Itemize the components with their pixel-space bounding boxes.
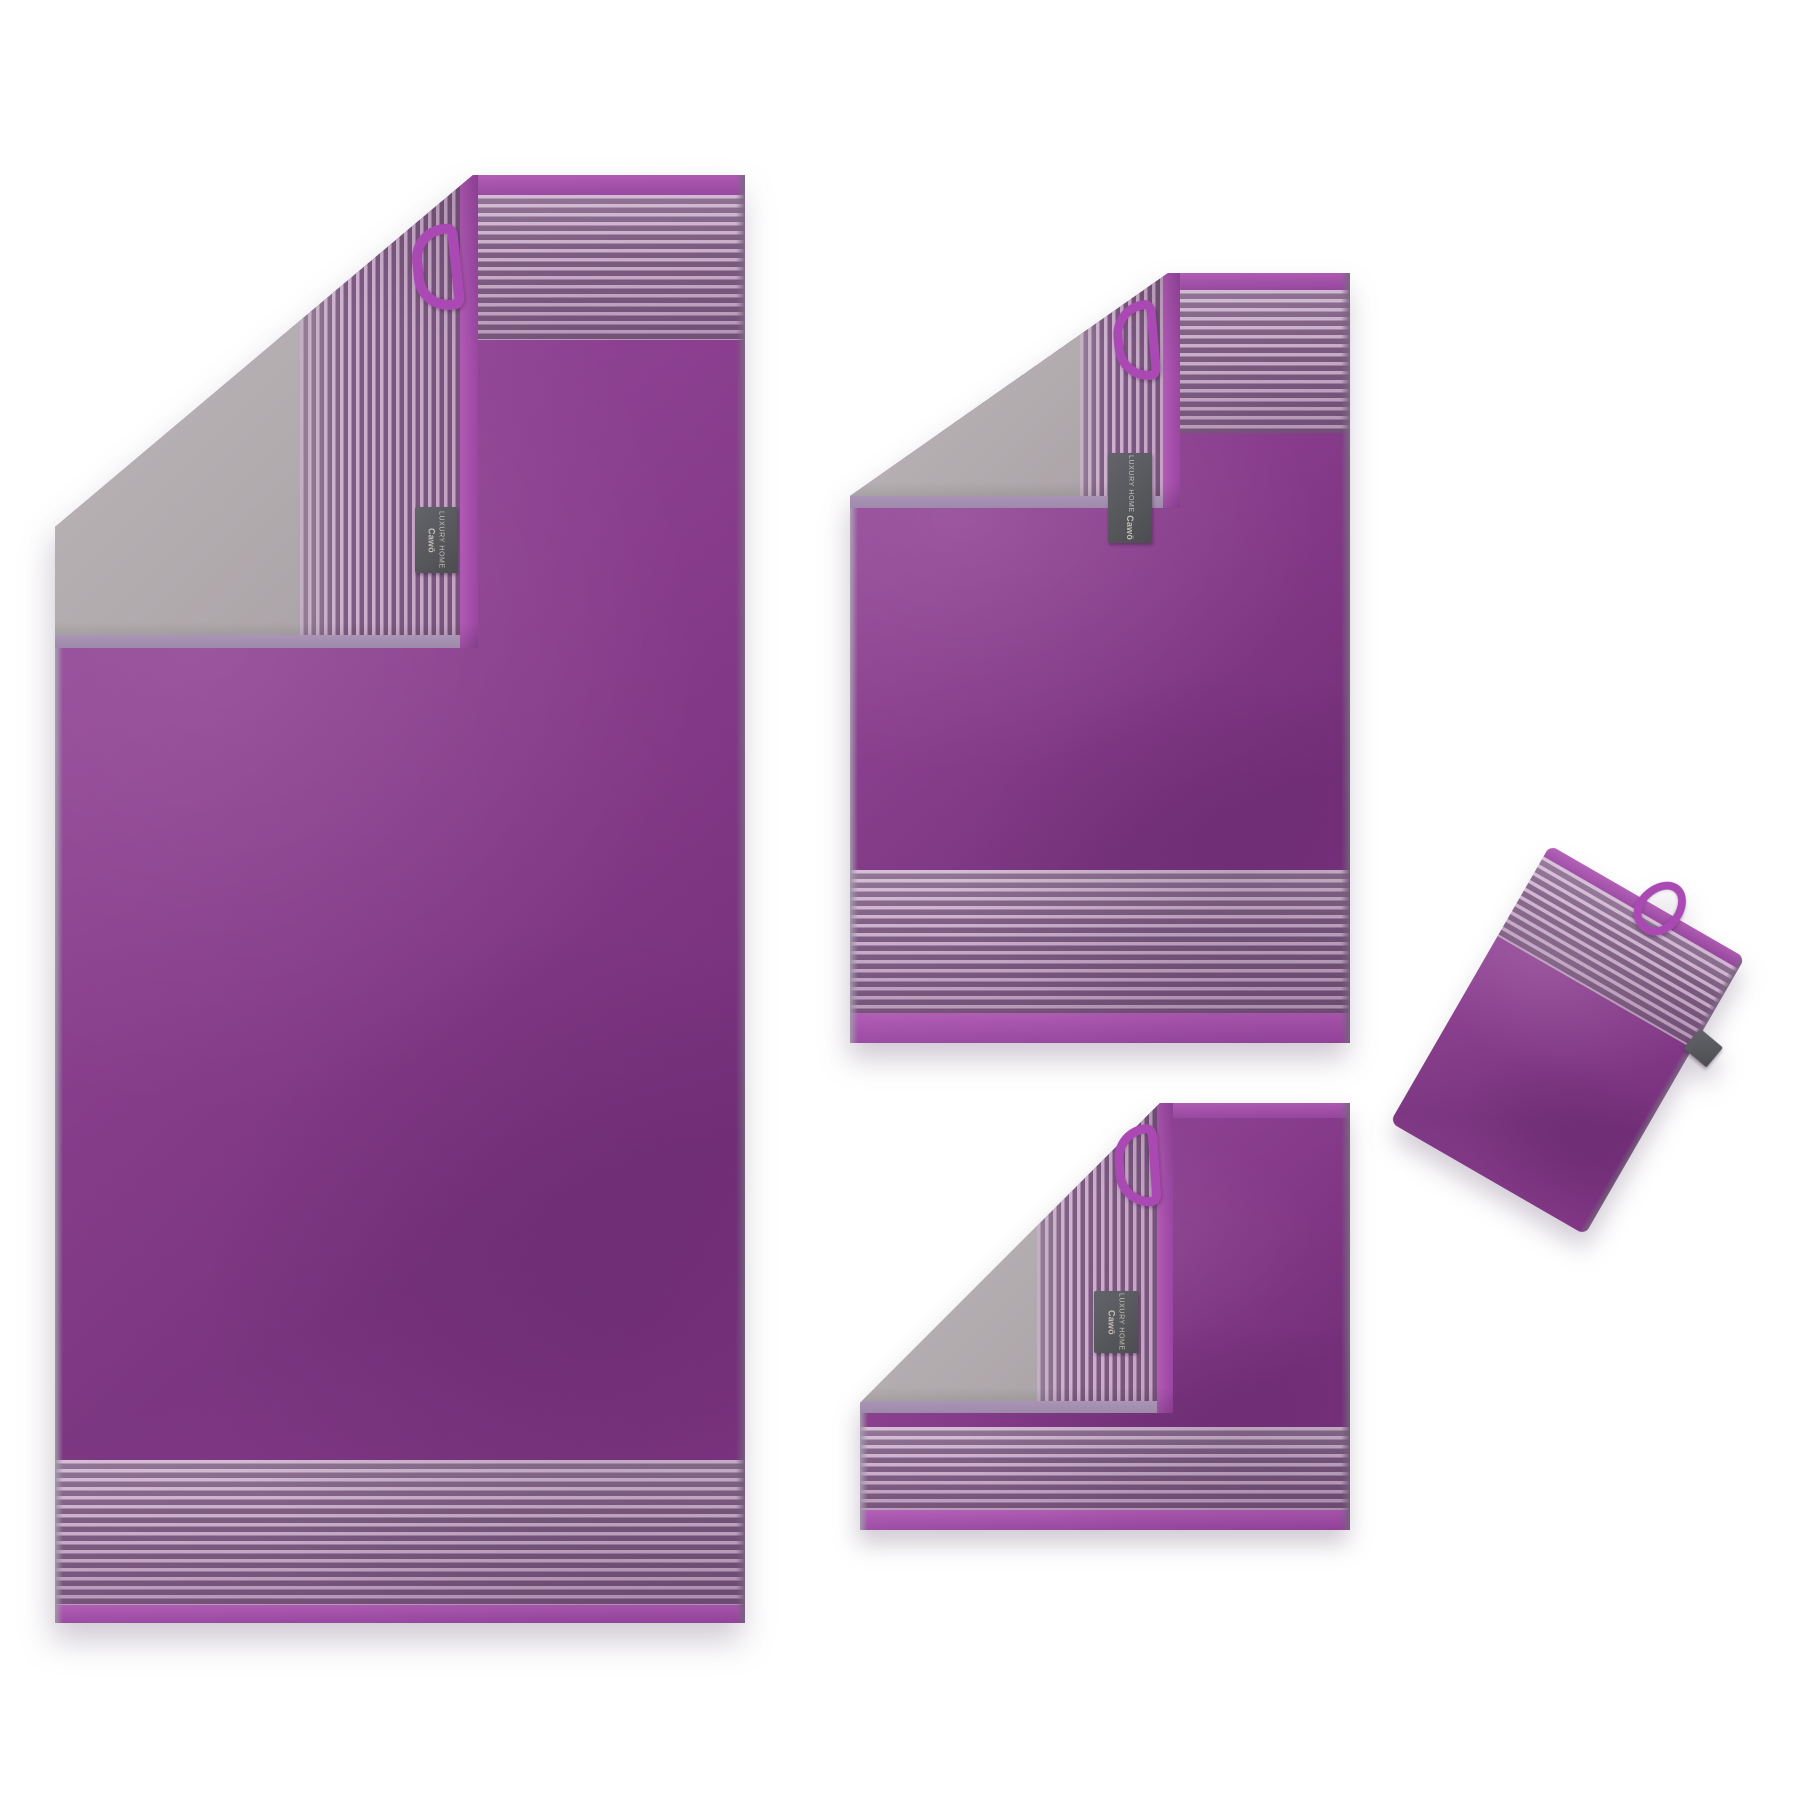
bath-towel-bottom-stripe-band — [55, 1460, 745, 1605]
brand-tag-line: LUXURY HOME — [438, 511, 445, 569]
hand-towel-left-edge — [850, 496, 858, 1043]
guest-towel-right-edge — [1341, 1103, 1350, 1530]
brand-tag-logo: Cawö — [1107, 1310, 1117, 1335]
hand-towel: LUXURY HOME Cawö — [850, 273, 1350, 1043]
guest-towel-fold-hem — [1157, 1103, 1173, 1413]
bath-towel-fold-bottom-hem — [55, 635, 460, 648]
bath-towel-fold-hem — [460, 175, 478, 648]
guest-towel: LUXURY HOME Cawö — [860, 1103, 1350, 1530]
hand-towel-right-edge — [1341, 273, 1350, 1043]
brand-tag-line: LUXURY HOME — [1127, 455, 1134, 513]
bath-towel-brand-tag: LUXURY HOME Cawö — [415, 507, 457, 573]
guest-towel-brand-tag: LUXURY HOME Cawö — [1094, 1291, 1138, 1353]
hand-towel-bottom-stripe-band — [850, 870, 1350, 1013]
bath-towel-left-edge — [55, 527, 63, 1623]
guest-towel-fold-bottom-hem — [860, 1401, 1157, 1413]
bath-towel-bottom-hem — [55, 1605, 745, 1623]
product-photo: LUXURY HOME Cawö LUXURY HOME Cawö — [0, 0, 1800, 1800]
brand-tag-text: LUXURY HOME Cawö — [427, 507, 446, 573]
brand-tag-logo: Cawö — [1125, 516, 1135, 541]
hand-towel-brand-tag: LUXURY HOME Cawö — [1108, 453, 1152, 543]
brand-tag-text: LUXURY HOME Cawö — [1107, 1291, 1126, 1353]
guest-towel-bottom-stripe-band — [860, 1427, 1350, 1510]
brand-tag-line: LUXURY HOME — [1118, 1293, 1125, 1351]
brand-tag-logo: Cawö — [427, 528, 437, 553]
brand-tag-text: LUXURY HOME Cawö — [1125, 455, 1135, 540]
bath-towel-top-hem — [55, 175, 745, 195]
guest-towel-bottom-hem — [860, 1510, 1350, 1530]
bath-towel-right-edge — [736, 175, 745, 1623]
guest-towel-left-edge — [860, 1403, 868, 1530]
hand-towel-top-hem — [850, 273, 1350, 290]
guest-towel-top-hem — [860, 1103, 1350, 1118]
hand-towel-bottom-hem — [850, 1013, 1350, 1043]
wash-mitt — [1390, 845, 1745, 1235]
hand-towel-fold-hem — [1163, 273, 1180, 508]
bath-towel: LUXURY HOME Cawö — [55, 175, 745, 1623]
